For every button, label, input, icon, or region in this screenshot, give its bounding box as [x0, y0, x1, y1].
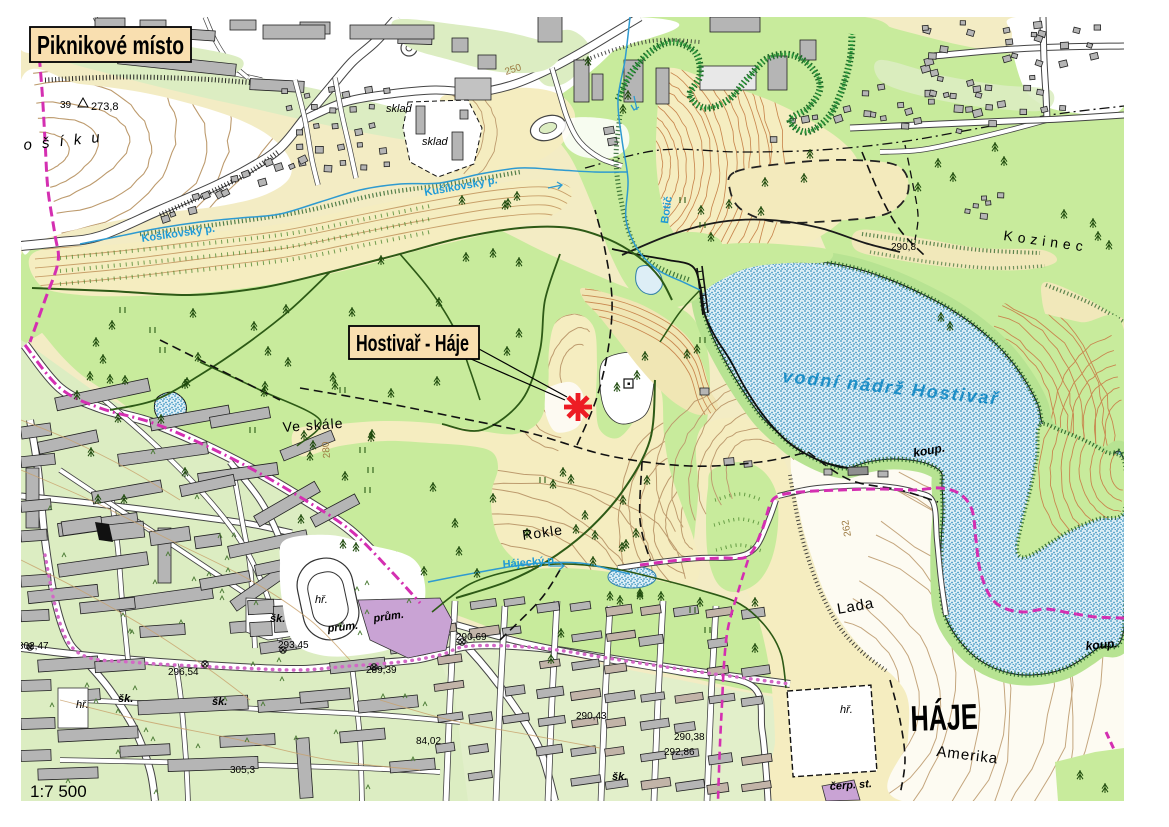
svg-text:305,3: 305,3 [230, 765, 255, 776]
svg-text:šk.: šk. [270, 613, 285, 625]
svg-text:hř.: hř. [315, 594, 328, 606]
svg-text:šk.: šk. [118, 693, 133, 705]
svg-text:sklad: sklad [386, 103, 413, 115]
svg-text:290,43: 290,43 [576, 711, 607, 722]
svg-text:koup.: koup. [1085, 636, 1118, 653]
svg-text:273,8: 273,8 [91, 101, 119, 113]
svg-text:sklad: sklad [422, 136, 449, 148]
svg-text:Piknikové místo: Piknikové místo [37, 30, 184, 60]
svg-text:290,38: 290,38 [674, 732, 705, 743]
svg-text:296,54: 296,54 [168, 667, 199, 678]
svg-text:šk.: šk. [212, 696, 227, 708]
svg-text:hř.: hř. [76, 699, 89, 711]
svg-text:39: 39 [60, 100, 72, 111]
svg-text:84,02: 84,02 [416, 736, 441, 747]
svg-text:šk.: šk. [612, 771, 627, 783]
svg-text:280: 280 [321, 441, 333, 459]
svg-text:Hostivař - Háje: Hostivař - Háje [356, 330, 469, 356]
svg-text:hř.: hř. [840, 704, 853, 716]
svg-text:290,8: 290,8 [891, 242, 916, 253]
svg-text:292,86: 292,86 [664, 747, 695, 758]
svg-text:1:7 500: 1:7 500 [30, 782, 87, 801]
svg-text:HÁJE: HÁJE [910, 696, 978, 739]
